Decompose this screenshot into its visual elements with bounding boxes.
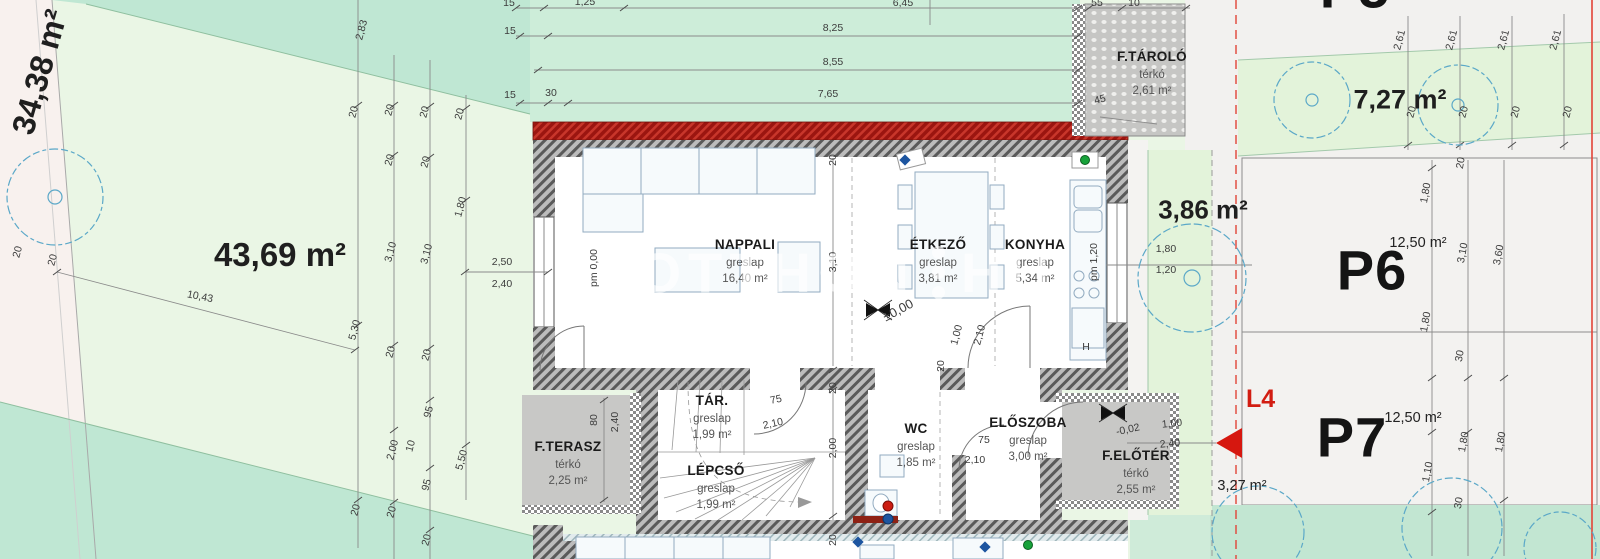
dim-label: 20 (828, 154, 839, 166)
room-label-feloter: F.ELŐTÉR térkó 2,55 m² (1102, 447, 1170, 498)
dim-label: 45 (1093, 93, 1107, 106)
area-label-upper-right: 7,27 m² (1353, 85, 1446, 116)
dim-label: 20 (347, 105, 360, 119)
dim-label: 2,40 (610, 412, 621, 432)
dim-label: 10 (404, 439, 417, 453)
watermark-dots-icon (932, 246, 945, 299)
dim-label: 20 (383, 103, 396, 117)
parking-area-p7: 12,50 m² (1384, 410, 1441, 426)
dim-label: 1,80 (1156, 244, 1176, 255)
dim-label: 20 (349, 503, 362, 517)
parking-area-p6: 12,50 m² (1389, 235, 1446, 251)
gas-marker-icon (1081, 156, 1090, 165)
dim-label: 75 (769, 394, 783, 407)
dim-label: 15 (503, 0, 515, 8)
dim-label: 30 (545, 88, 557, 99)
dim-label: 1,25 (575, 0, 595, 7)
dim-label: 20 (418, 105, 431, 119)
dim-label: 1,00 (1161, 418, 1182, 431)
dim-label: 10 (1128, 0, 1140, 8)
dim-label: 20 (828, 534, 839, 546)
dim-label: 75 (978, 435, 990, 446)
dim-label: H (1082, 342, 1090, 353)
dim-label: 20 (936, 360, 947, 372)
dim-label: 6,45 (893, 0, 913, 8)
dim-label: 8,25 (823, 23, 843, 34)
dim-label: 2,50 (492, 257, 512, 268)
area-label-garden: 43,69 m² (214, 236, 346, 274)
dim-label: 30 (1453, 496, 1465, 509)
dim-label: 20 (46, 253, 59, 267)
room-label-fterasz: F.TERASZ térkó 2,25 m² (535, 438, 602, 489)
area-label-l4: 3,27 m² (1217, 478, 1266, 494)
room-label-ftarolo: F.TÁROLÓ térkó 2,61 m² (1117, 48, 1187, 99)
dim-label: 80 (589, 414, 600, 426)
dim-label: 1,20 (1156, 265, 1176, 276)
dim-label: 20 (11, 245, 24, 259)
dim-label: 8,55 (823, 57, 843, 68)
dim-label: 7,65 (818, 89, 838, 100)
dim-label: 20 (1509, 105, 1522, 119)
dim-label: 15 (504, 26, 516, 37)
dim-label: 95 (422, 405, 435, 419)
dim-label: 20 (1405, 105, 1418, 119)
dim-label: 20 (384, 345, 397, 359)
dim-label: 15 (504, 90, 516, 101)
dim-label: 2,40 (492, 279, 512, 290)
entrance-marker-l4: L4 (1246, 385, 1275, 414)
room-label-tar: TÁR. greslap 1,99 m² (693, 392, 732, 443)
parking-stall-p7: P7 (1317, 405, 1388, 470)
dim-label: 20 (1561, 105, 1574, 119)
dim-label: 20 (453, 107, 466, 121)
dim-label: 95 (420, 478, 433, 492)
watermark-text-right: HU (961, 240, 1056, 305)
watermark-text-left: UJOTTHON (552, 240, 916, 305)
dim-label: 20 (420, 348, 433, 362)
dim-label: 55 (1091, 0, 1103, 8)
room-label-lepcso: LÉPCSŐ greslap 1,99 m² (687, 462, 744, 513)
cold-water-icon (883, 514, 893, 524)
dim-label: 20 (419, 155, 432, 169)
dim-label: 2,10 (965, 455, 985, 466)
dim-label: pm 1,20 (1089, 243, 1100, 281)
dim-label: 20 (1455, 156, 1467, 169)
dim-label: 20 (420, 533, 433, 547)
dim-label: 2,00 (828, 438, 839, 458)
floor-plan: 34,38 m² 43,69 m² 3,86 m² 7,27 m² 3,27 m… (0, 0, 1600, 559)
area-label-side-green: 3,86 m² (1158, 195, 1248, 226)
dim-label: 20 (385, 505, 398, 519)
room-label-eloszoba: ELŐSZOBA greslap 3,00 m² (989, 414, 1066, 465)
watermark: UJOTTHON HU (552, 240, 1056, 305)
dim-label: 20 (1457, 105, 1470, 119)
dim-label: 20 (383, 153, 396, 167)
dim-label: 30 (1454, 349, 1466, 362)
hot-water-icon (883, 501, 893, 511)
parking-stall-p5: P5 (1320, 0, 1391, 21)
dim-label: 20 (828, 382, 839, 394)
room-label-wc: WC greslap 1,85 m² (897, 420, 936, 471)
dim-label: 2,40 (1159, 438, 1180, 451)
